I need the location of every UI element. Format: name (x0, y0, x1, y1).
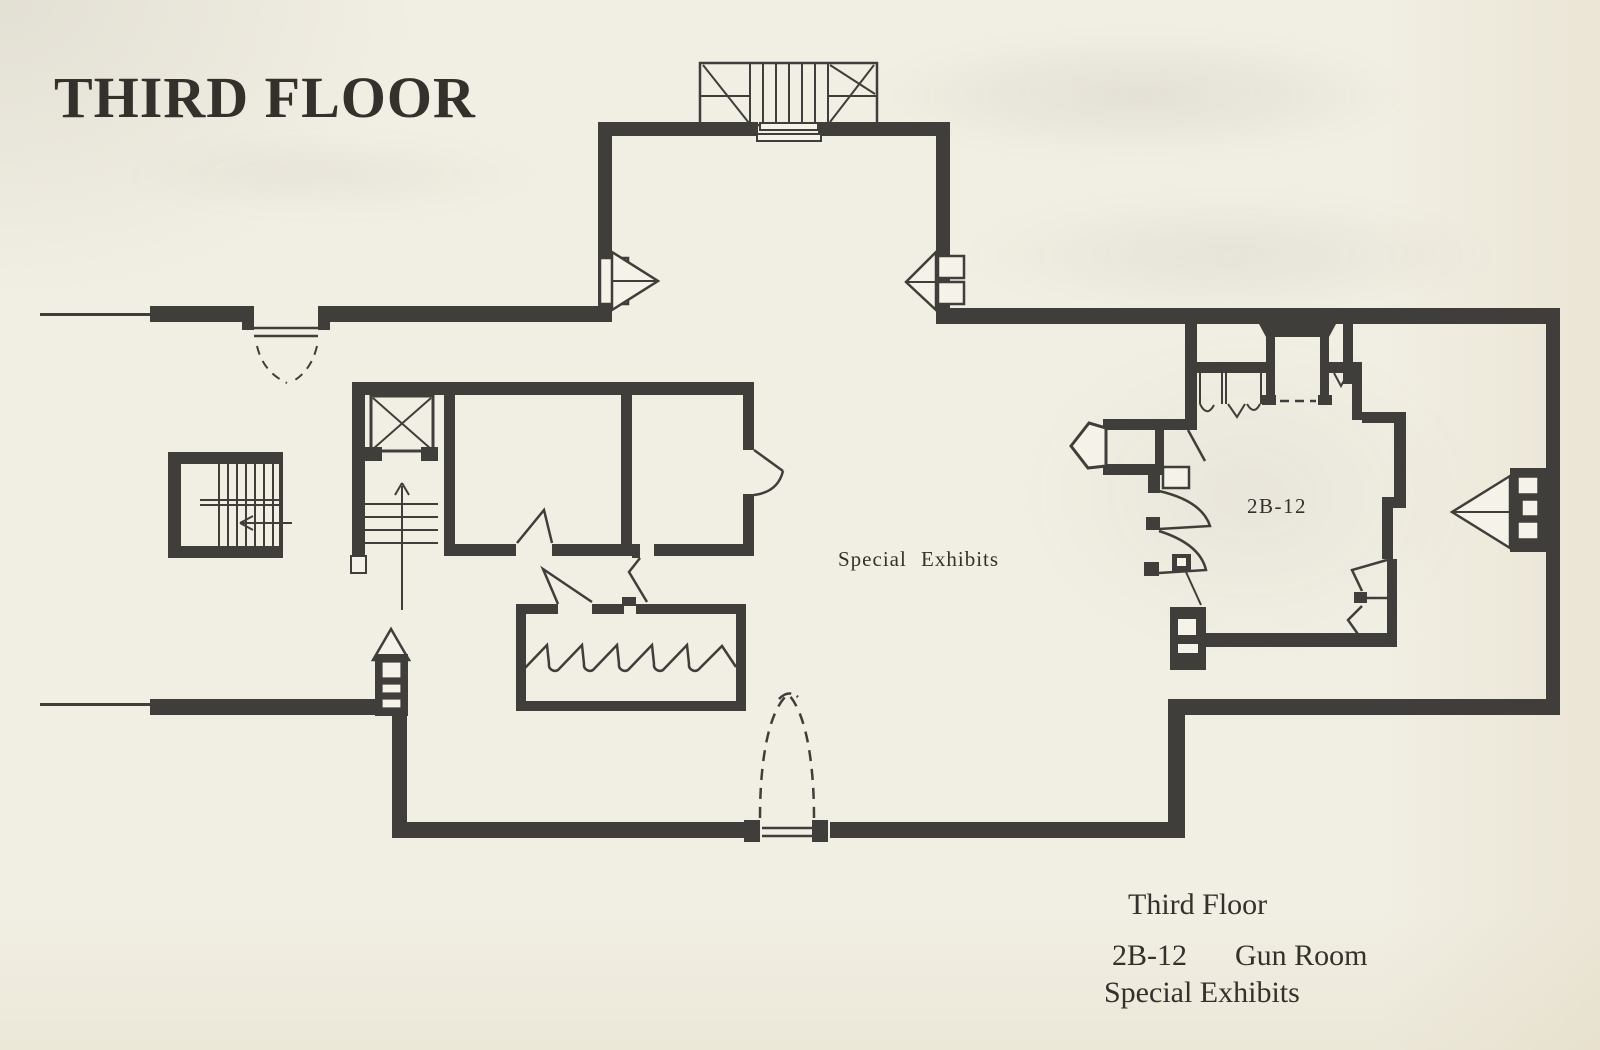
legend-gun-room-name: Gun Room (1235, 939, 1368, 972)
zigzag-exhibit-partition (524, 645, 736, 671)
bay-window-north-left (600, 252, 658, 310)
exhibit-rooms (444, 382, 783, 602)
legend: Third Floor 2B-12Gun Room Special Exhibi… (1104, 888, 1368, 1010)
bay-window-north-right (906, 252, 964, 310)
outer-walls (40, 122, 1560, 838)
bay-window-east (1452, 468, 1548, 552)
west-entry-door (242, 306, 330, 383)
zigzag-room (516, 569, 746, 711)
door-leaf (543, 569, 592, 604)
fireplace (1259, 324, 1336, 405)
scanned-floor-plan-page: THIRD FLOOR (0, 0, 1600, 1050)
legend-floor-title: Third Floor (1128, 888, 1368, 922)
gun-room (1071, 322, 1406, 670)
left-staircase (168, 452, 292, 558)
legend-gun-room-code: 2B-12 (1112, 939, 1235, 973)
special-exhibits-label: Special Exhibits (838, 547, 999, 572)
bay-window-south-west (373, 629, 409, 716)
gun-room-code-label: 2B-12 (1247, 494, 1307, 519)
south-arched-entrance (744, 693, 828, 842)
legend-special-exhibits: Special Exhibits (1104, 976, 1368, 1010)
elevator-staircase (365, 483, 438, 610)
legend-gun-room-row: 2B-12Gun Room (1112, 939, 1368, 973)
